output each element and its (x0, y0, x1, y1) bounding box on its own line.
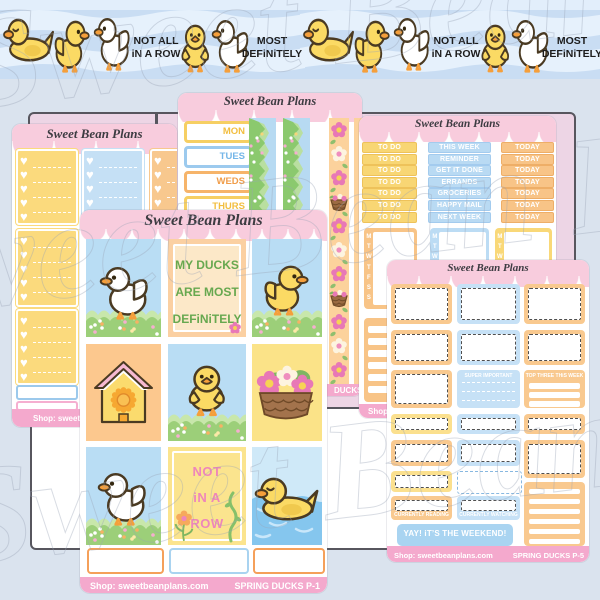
svg-text:NOT ALL: NOT ALL (433, 35, 479, 47)
svg-text:iN A ROW: iN A ROW (432, 48, 481, 60)
svg-text:DEFiNiTELY: DEFiNiTELY (542, 48, 600, 60)
svg-text:MOST: MOST (257, 35, 288, 47)
svg-text:NOT ALL: NOT ALL (133, 35, 179, 47)
svg-text:iN A ROW: iN A ROW (132, 48, 181, 60)
svg-text:DEFiNiTELY: DEFiNiTELY (242, 48, 302, 60)
svg-text:MOST: MOST (557, 35, 588, 47)
